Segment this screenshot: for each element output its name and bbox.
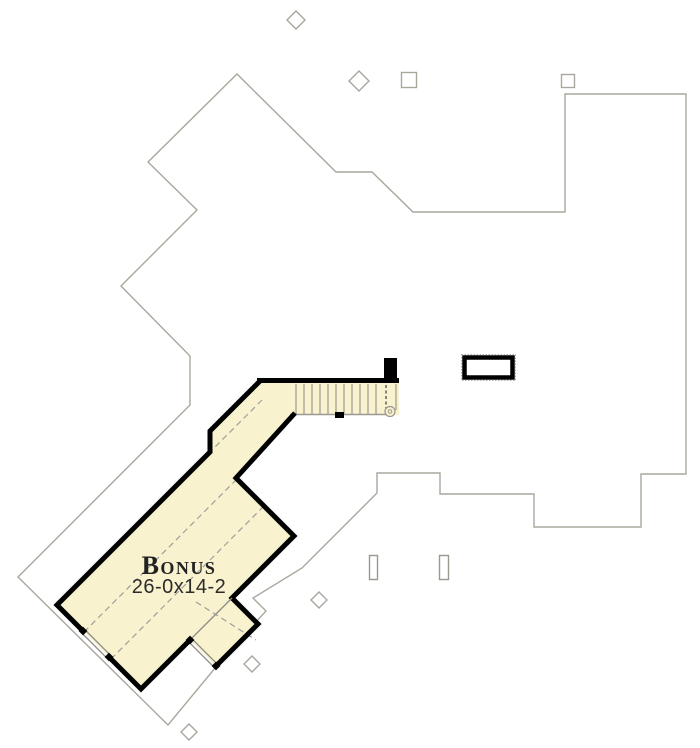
roof-square-marker	[402, 73, 417, 88]
roof-diamond-marker	[349, 71, 369, 91]
roof-diamond-marker	[311, 592, 327, 608]
chimney-body	[465, 358, 513, 378]
room-dimensions: 26-0x14-2	[132, 576, 227, 598]
bonus-area-fill	[57, 378, 399, 689]
stair-bottom-nub	[335, 412, 344, 418]
roof-diamond-marker	[244, 656, 260, 672]
floor-plan-canvas: Bonus 26-0x14-2	[0, 0, 700, 748]
roof-vent	[370, 556, 378, 580]
floor-plan-page: Bonus 26-0x14-2	[0, 0, 700, 748]
roof-diamond-marker	[181, 724, 197, 740]
chimney	[462, 355, 516, 381]
roof-vent	[440, 556, 449, 580]
stair-railing-curl	[385, 407, 395, 417]
roof-diamond-marker	[287, 11, 305, 29]
roof-square-marker	[562, 75, 575, 88]
